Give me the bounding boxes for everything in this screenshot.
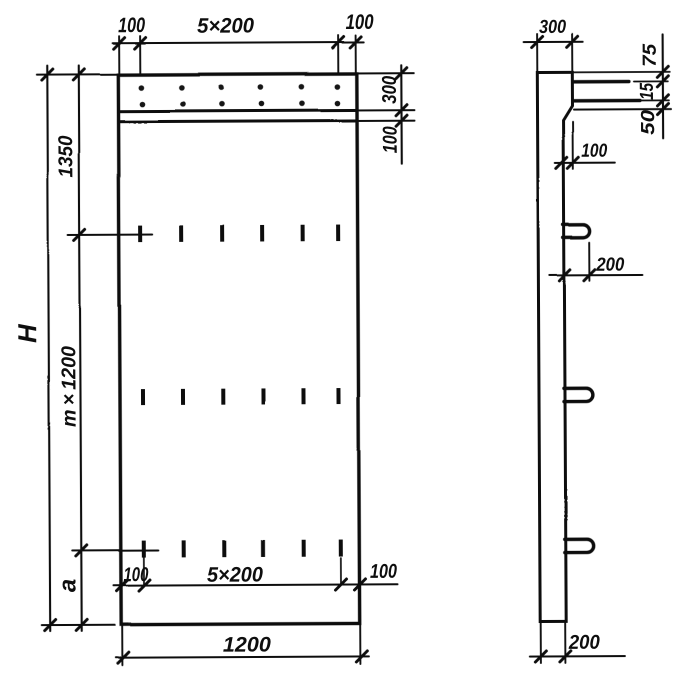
svg-text:100: 100 (118, 14, 145, 37)
svg-text:100: 100 (345, 11, 373, 34)
svg-text:5×200: 5×200 (197, 14, 254, 37)
svg-text:100: 100 (581, 141, 607, 162)
svg-text:300: 300 (379, 76, 401, 104)
svg-text:1350: 1350 (55, 135, 77, 177)
svg-text:100: 100 (370, 561, 397, 583)
svg-text:200: 200 (595, 255, 624, 276)
svg-text:50: 50 (638, 109, 659, 135)
svg-text:100: 100 (380, 126, 402, 153)
svg-text:5×200: 5×200 (207, 563, 263, 586)
svg-text:m × 1200: m × 1200 (58, 346, 80, 427)
svg-text:a: a (54, 579, 81, 593)
svg-text:100: 100 (123, 564, 148, 586)
svg-text:15: 15 (637, 83, 658, 100)
svg-text:200: 200 (568, 632, 600, 654)
svg-text:75: 75 (640, 43, 661, 67)
svg-text:1200: 1200 (223, 633, 271, 656)
svg-text:H: H (12, 323, 42, 343)
svg-text:300: 300 (539, 17, 566, 38)
